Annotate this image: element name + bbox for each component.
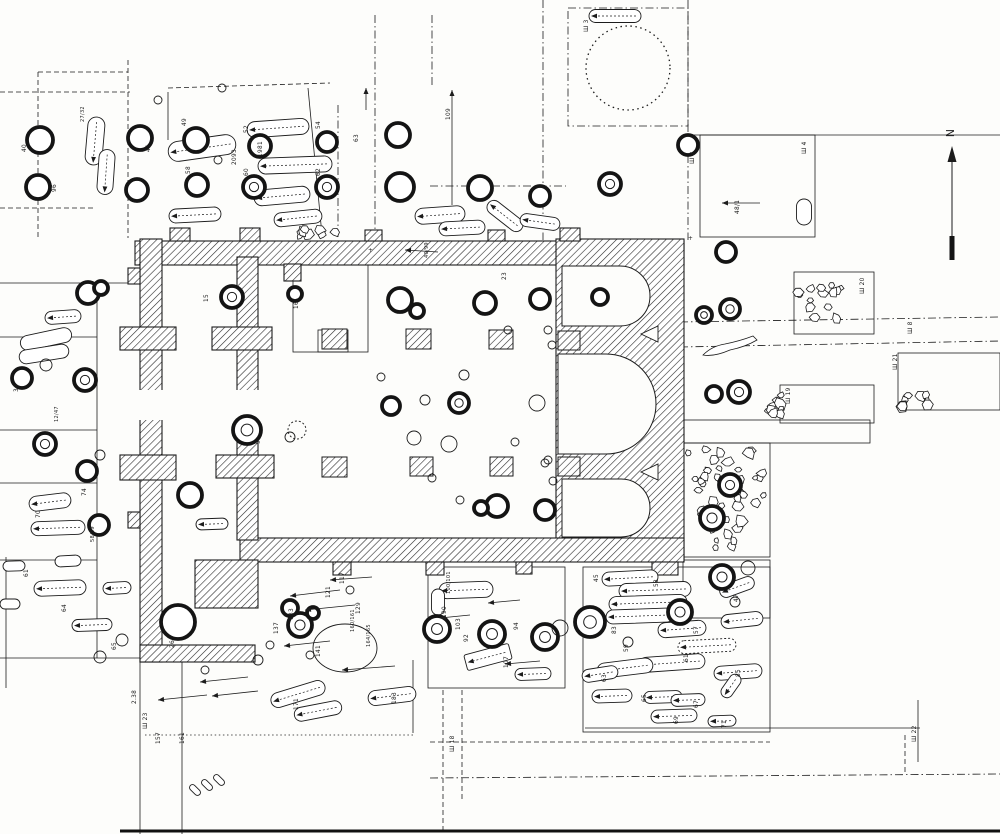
pit-dark: [77, 461, 97, 481]
pit-dark: [468, 176, 492, 200]
section-arrow: [290, 590, 340, 596]
grave-outline: [200, 778, 213, 791]
pit-thin: [346, 586, 354, 594]
arrowhead: [330, 577, 336, 582]
pit-thin: [377, 373, 385, 381]
feature-label: 40: [22, 144, 28, 152]
pit-thin: [266, 641, 274, 649]
grave: [484, 198, 526, 235]
rubble-stone: [716, 466, 722, 472]
rubble-stone: [685, 450, 691, 456]
north-arrow-base: [950, 236, 955, 260]
wall-segment: [140, 239, 162, 662]
pit-dark: [479, 621, 505, 647]
section-arrow: [284, 641, 330, 646]
pit-dark: [161, 605, 195, 639]
feature-label: 133: [289, 608, 295, 620]
feature-label: 40/99: [424, 242, 430, 258]
grave: [293, 700, 343, 723]
pit-dark: [474, 292, 496, 314]
pit-dark: [26, 175, 50, 199]
feature-label: 59: [624, 644, 630, 652]
wall-doorway-gap: [138, 390, 164, 420]
pit-dark: [388, 288, 412, 312]
arrowhead: [488, 600, 494, 605]
feature-label: 65: [642, 694, 648, 702]
feature-label: Ш 20: [860, 277, 866, 294]
rubble-stone: [736, 515, 748, 527]
feature-label: 171: [294, 698, 300, 710]
rubble-cluster: [793, 283, 844, 324]
pier-base: [410, 457, 433, 476]
pit-dark: [317, 132, 337, 152]
rubble-stone: [732, 501, 744, 511]
pit-dark: [94, 281, 108, 295]
grave: [671, 693, 705, 706]
section-arrow: [342, 666, 395, 670]
feature-label: 15: [204, 294, 210, 302]
pit-dark: [668, 600, 692, 624]
feature-label: 69: [674, 716, 680, 724]
pit-thin: [288, 421, 306, 439]
wall-segment: [240, 538, 684, 562]
feature-label: 26: [170, 640, 176, 648]
grave: [34, 580, 86, 597]
feature-label: 63: [602, 674, 608, 682]
grave: [720, 611, 763, 629]
rubble-stone: [692, 476, 698, 481]
grave: [519, 213, 560, 231]
north-arrow-head: [948, 146, 957, 162]
rubble-stone: [713, 545, 719, 551]
feature-label: Ш 23: [143, 712, 149, 729]
grave: [606, 608, 674, 624]
wall-segment: [128, 268, 140, 284]
grave: [169, 207, 222, 224]
rubble-stone: [817, 284, 826, 291]
wall-segment: [216, 455, 274, 478]
pit-dark: [316, 176, 338, 198]
feature-label: 92: [464, 634, 470, 642]
rubble-stone: [833, 313, 841, 323]
feature-label: Ш 8: [908, 321, 914, 334]
rubble-stone: [742, 448, 754, 459]
grave-outline: [519, 213, 560, 231]
feature-label: Ш 18: [450, 735, 456, 752]
grave-outline: [293, 700, 343, 723]
pit-dark: [532, 624, 558, 650]
pit-dark: [728, 381, 750, 403]
pit-dark: [719, 474, 741, 496]
feature-label: 34: [14, 384, 20, 392]
pit-thin: [154, 96, 162, 104]
feature-label: Ш 21: [893, 353, 899, 370]
pit-dark: [530, 186, 550, 206]
feature-label: 109: [446, 108, 452, 120]
pit-dark: [706, 386, 722, 402]
feature-label: +: [688, 236, 693, 242]
grave-outline: [0, 599, 20, 609]
pit-dark: [530, 289, 550, 309]
feature-label: 129: [356, 602, 362, 614]
pit-thin: [441, 436, 457, 452]
pier-base: [406, 329, 431, 349]
pit-dark: [34, 433, 56, 455]
pit-dark: [720, 299, 740, 319]
grave: [212, 773, 225, 786]
rubble-stone: [829, 287, 837, 297]
feature-label: 65: [112, 642, 118, 650]
feature-label: 16: [294, 301, 300, 309]
feature-label: 47: [734, 594, 740, 602]
feature-label: 27/32: [80, 106, 86, 122]
feature-label: Ш 2: [690, 151, 696, 164]
pier-base: [558, 331, 580, 350]
north-label: N: [943, 129, 956, 137]
feature-label: 70: [36, 510, 42, 518]
feature-label: 67: [694, 700, 700, 708]
pit-dark: [27, 127, 53, 153]
excavation-plan-page: 404127/3249525496586062198120936310940/9…: [0, 0, 1000, 834]
rubble-cluster: [896, 391, 933, 412]
grave: [45, 309, 82, 324]
grave-outline: [797, 199, 812, 225]
feature-label: 2.38: [132, 690, 138, 704]
wall-segment: [140, 645, 255, 662]
rubble-stone: [829, 283, 835, 289]
rubble-stone: [740, 491, 748, 498]
feature-label: 160/161: [350, 609, 356, 632]
rubble-stone: [721, 457, 734, 466]
feature-label: 85: [736, 669, 742, 677]
apse: [562, 479, 650, 537]
rubble-stone: [760, 493, 766, 499]
feature-label: 183: [392, 692, 398, 704]
arrowhead: [364, 88, 369, 94]
pit-dark: [599, 173, 621, 195]
pit-thin: [285, 432, 295, 442]
wall-segment: [128, 512, 140, 528]
pit-thin: [459, 370, 469, 380]
feature-label: 141: [316, 645, 322, 657]
rubble-stone: [922, 400, 933, 410]
grave: [581, 665, 619, 683]
feature-label: 100/101: [446, 571, 452, 594]
feature-label: 64: [62, 604, 68, 612]
trench-line: [430, 774, 1000, 778]
trench-line: [168, 83, 330, 88]
feature-label: 157: [156, 732, 162, 744]
feature-label: 9: [256, 440, 262, 444]
grave: [678, 638, 737, 654]
pit-dark: [243, 176, 265, 198]
feature-label: 83: [612, 626, 618, 634]
pit-thin: [95, 450, 105, 460]
pit-thin: [529, 395, 545, 411]
pier-base: [490, 457, 513, 476]
feature-label: 61: [684, 654, 690, 662]
rubble-stone: [806, 303, 816, 312]
rubble-stone: [714, 538, 718, 543]
rubble-cluster: [764, 392, 786, 419]
grave: [196, 518, 228, 530]
pit-thin: [218, 84, 226, 92]
pit-dark: [716, 242, 736, 262]
feature-label: 103: [456, 618, 462, 630]
wall-segment: [516, 562, 532, 574]
wall-segment: [365, 230, 382, 241]
pier-base: [322, 457, 347, 477]
grave: [3, 561, 25, 572]
feature-label: 161: [180, 732, 186, 744]
pit-dark: [696, 307, 712, 323]
pit-dark: [382, 397, 400, 415]
trench-outline: [780, 385, 874, 423]
rubble-stone: [809, 313, 820, 321]
section-arrow: [158, 695, 207, 700]
pit-dark: [710, 565, 734, 589]
pit-dark: [592, 289, 608, 305]
rubble-stone: [702, 446, 711, 453]
feature-label: 121: [326, 586, 332, 598]
grave: [55, 555, 82, 567]
feature-label: 63: [354, 134, 360, 142]
arrowhead: [212, 693, 218, 698]
arrowhead: [200, 679, 206, 684]
trench-outline: [898, 353, 1000, 410]
feature-label: 74: [82, 488, 88, 496]
pit-thin: [511, 438, 519, 446]
grave: [589, 10, 641, 23]
pit-dark: [424, 616, 450, 642]
apse: [558, 354, 656, 454]
feature-label: 71: [722, 720, 728, 728]
pit-thin: [420, 395, 430, 405]
pit-thin: [306, 651, 314, 659]
grave: [188, 783, 201, 796]
feature-label: 58: [186, 166, 192, 174]
feature-label: 137: [274, 622, 280, 634]
feature-label: 58/59: [90, 526, 96, 542]
wall-segment: [284, 264, 301, 281]
feature-label: 96: [52, 184, 58, 192]
section-arrow: [330, 577, 372, 580]
rubble-stone: [807, 298, 814, 303]
feature-label: 117: [340, 572, 346, 584]
feature-label: 41: [146, 144, 152, 152]
pier-base: [489, 330, 513, 349]
feature-label: 94: [514, 622, 520, 630]
pier-base: [558, 457, 580, 476]
wall-segment: [120, 455, 176, 480]
feature-label: 49: [182, 118, 188, 126]
arrowhead: [158, 697, 164, 702]
pit-dark: [184, 128, 208, 152]
wall-segment: [560, 228, 580, 241]
feature-label: +: [368, 248, 373, 254]
feature-label: Ш 3: [584, 19, 590, 32]
arrowhead: [722, 201, 728, 206]
grave-outline: [212, 773, 225, 786]
rubble-cluster: [297, 226, 340, 240]
feature-label: 107: [504, 656, 510, 668]
rubble-stone: [752, 476, 757, 480]
rubble-stone: [694, 488, 703, 494]
rubble-stone: [731, 537, 737, 545]
feature-label: Ш 19: [786, 387, 792, 404]
section-arrow: [212, 691, 258, 696]
rubble-stone: [751, 498, 761, 508]
rubble-stone: [735, 467, 742, 472]
pit-dark: [386, 123, 410, 147]
pit-dark: [74, 369, 96, 391]
feature-label: 23: [502, 272, 508, 280]
feature-label: 60: [244, 168, 250, 176]
feature-label: 62: [316, 168, 322, 176]
pit-dark: [178, 483, 202, 507]
rubble-stone: [824, 304, 832, 310]
grave: [0, 599, 20, 609]
feature-label: 164/165: [366, 624, 372, 647]
rubble-stone: [922, 391, 929, 398]
pit-thin: [94, 651, 106, 663]
pit-dark: [700, 506, 724, 530]
arrowhead: [290, 593, 296, 598]
feature-label: Ш 22: [912, 725, 918, 742]
feature-label: 2093: [232, 149, 238, 165]
feature-label: 57: [694, 626, 700, 634]
grave: [31, 520, 85, 536]
feature-label: Ш 4: [802, 141, 808, 154]
trench-outline: [683, 420, 870, 443]
feature-label: 90: [442, 606, 448, 614]
pit-thin: [544, 326, 552, 334]
grave: [273, 209, 322, 228]
pit-dark: [126, 179, 148, 201]
pit-dark: [186, 174, 208, 196]
grave: [515, 667, 551, 680]
rubble-stone: [330, 228, 340, 236]
pit-thin: [741, 561, 755, 575]
pit-dark: [288, 287, 302, 301]
feature-label: 45: [594, 574, 600, 582]
section-arrow: [200, 677, 248, 682]
wall-segment: [426, 562, 444, 575]
pit-thin: [214, 156, 222, 164]
grave: [797, 199, 812, 225]
pit-thin: [456, 496, 464, 504]
north-arrow: N: [943, 129, 957, 260]
feature-label: 54: [316, 121, 322, 129]
pit-thin: [201, 666, 209, 674]
wall-segment: [120, 327, 176, 350]
grave: [72, 618, 112, 631]
arrowhead: [450, 90, 455, 96]
arrowhead: [284, 643, 290, 648]
rubble-stone: [717, 447, 725, 457]
feature-label: 52: [244, 125, 250, 133]
grave-outline: [55, 555, 82, 567]
pit-dark: [386, 173, 414, 201]
pit-thin: [407, 431, 421, 445]
grave: [592, 689, 632, 703]
pit-dark: [535, 500, 555, 520]
pit-dark: [233, 416, 261, 444]
grave: [439, 220, 486, 236]
dotted-mound-circle: [586, 26, 670, 110]
wall-segment: [212, 327, 272, 350]
pit-dark: [474, 501, 488, 515]
grave-outline: [3, 561, 25, 572]
feature-label: 48/1: [735, 200, 741, 214]
pit-dark: [575, 607, 605, 637]
rubble-cluster: [685, 446, 766, 551]
pit-dark: [221, 286, 243, 308]
wall-segment: [195, 560, 258, 608]
feature-label: 61: [24, 569, 30, 577]
grave: [28, 492, 72, 512]
feature-label: 12/47: [54, 406, 60, 422]
grave: [96, 149, 115, 195]
wall-segment: [240, 228, 260, 241]
feature-label: 53: [654, 579, 660, 587]
grave: [200, 778, 213, 791]
pit-dark: [449, 393, 469, 413]
graves-and-pits: [0, 10, 812, 797]
wall-segment: [488, 230, 505, 241]
grave-outline: [188, 783, 201, 796]
feature-label: 1981: [258, 141, 264, 157]
pier-base: [322, 329, 347, 349]
pit-dark: [410, 304, 424, 318]
site-plan-svg: 404127/3249525496586062198120936310940/9…: [0, 0, 1000, 834]
arrowhead: [342, 667, 348, 672]
grave: [103, 581, 132, 594]
wall-segment: [170, 228, 190, 241]
rubble-stone: [806, 285, 815, 293]
pit-thin: [548, 341, 556, 349]
